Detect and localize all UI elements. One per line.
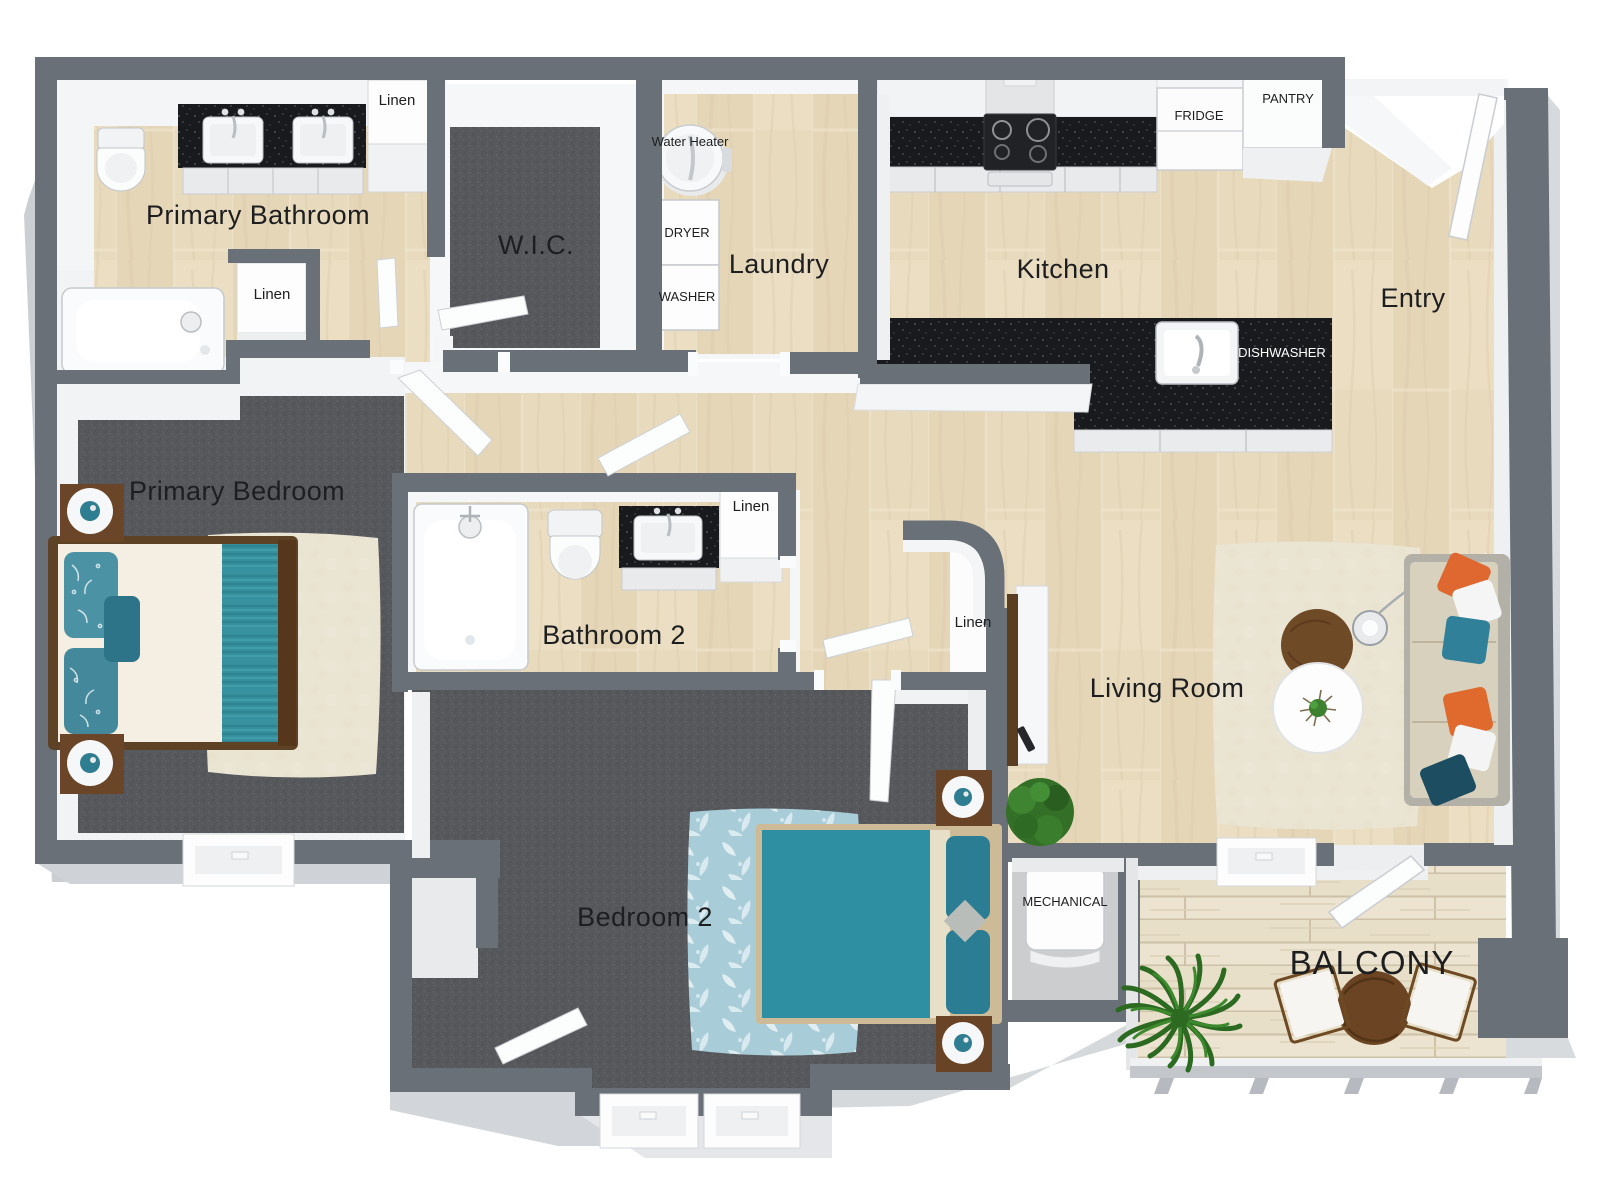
- svg-text:DISHWASHER: DISHWASHER: [1238, 345, 1326, 360]
- svg-text:FRIDGE: FRIDGE: [1174, 108, 1223, 123]
- svg-text:BALCONY: BALCONY: [1290, 944, 1455, 981]
- svg-text:Primary Bathroom: Primary Bathroom: [146, 200, 370, 230]
- svg-text:Bedroom 2: Bedroom 2: [577, 902, 713, 932]
- svg-text:WASHER: WASHER: [659, 289, 716, 304]
- svg-text:Kitchen: Kitchen: [1017, 254, 1110, 284]
- svg-text:Entry: Entry: [1380, 283, 1445, 313]
- svg-text:W.I.C.: W.I.C.: [498, 230, 574, 260]
- svg-text:Bathroom 2: Bathroom 2: [542, 620, 686, 650]
- svg-text:Linen: Linen: [379, 92, 416, 109]
- svg-text:Laundry: Laundry: [729, 249, 829, 279]
- svg-text:Linen: Linen: [955, 614, 992, 631]
- svg-text:Water Heater: Water Heater: [652, 134, 729, 149]
- svg-text:Primary Bedroom: Primary Bedroom: [129, 476, 345, 506]
- svg-text:MECHANICAL: MECHANICAL: [1022, 894, 1107, 909]
- svg-text:Linen: Linen: [733, 498, 770, 515]
- svg-text:Linen: Linen: [254, 286, 291, 303]
- svg-text:DRYER: DRYER: [664, 225, 709, 240]
- svg-text:Living Room: Living Room: [1090, 673, 1244, 703]
- svg-text:PANTRY: PANTRY: [1262, 91, 1314, 106]
